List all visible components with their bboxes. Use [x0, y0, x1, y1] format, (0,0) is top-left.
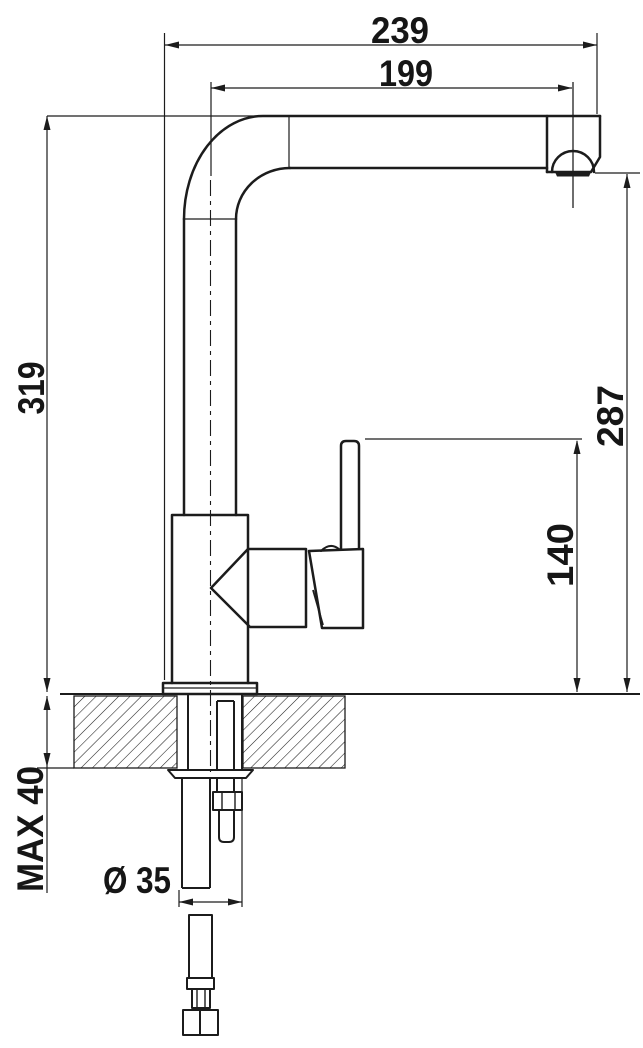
dim-label-199: 199	[379, 53, 433, 94]
object-joint-lines	[163, 116, 323, 688]
faucet-outline	[163, 116, 600, 694]
centerlines	[211, 82, 574, 772]
countertop-hatch-right	[243, 696, 345, 768]
arrow-199-right	[558, 85, 572, 92]
mounting-nut	[213, 792, 242, 810]
threaded-stud-upper	[217, 701, 234, 769]
dim-label-140: 140	[540, 523, 581, 587]
countertop	[60, 694, 640, 768]
hose-fitting-facets	[197, 989, 205, 1008]
countertop-hatch-left	[74, 696, 177, 768]
dim-label-287: 287	[590, 385, 631, 447]
drawing-canvas: 239 199 319 287 140 MAX 40 Ø 35	[0, 0, 643, 1048]
threaded-stud-lower	[217, 778, 234, 792]
dim-label-d35: Ø 35	[103, 860, 171, 901]
arrow-199-left	[211, 85, 225, 92]
extension-lines	[37, 33, 640, 907]
arrow-140-top	[574, 440, 581, 454]
hose-collar	[187, 978, 214, 989]
arrow-d35-right	[228, 899, 242, 906]
arrow-239-left	[165, 42, 179, 49]
stud-tip	[219, 810, 234, 842]
valve-body	[211, 549, 306, 627]
cartridge-cap	[309, 549, 363, 628]
arrow-d35-left	[179, 899, 193, 906]
cap-crease-line	[313, 590, 323, 625]
arrow-287-top	[624, 174, 631, 188]
arrow-239-right	[583, 42, 597, 49]
aerator-outlet	[555, 172, 591, 177]
dim-label-max40: MAX 40	[10, 766, 51, 892]
hose-tube	[189, 915, 212, 978]
arrow-319-top	[44, 116, 51, 130]
arrow-max40-top	[44, 696, 51, 710]
supply-hose	[183, 915, 218, 1035]
arrow-287-bottom	[624, 678, 631, 692]
dimension-lines	[47, 45, 627, 902]
spout-inner-curve	[236, 168, 290, 219]
hose-fitting	[192, 989, 210, 1008]
arrow-319-bottom	[44, 678, 51, 692]
dim-label-319: 319	[11, 362, 52, 415]
arrow-max40-bottom	[44, 753, 51, 767]
supply-pipe	[182, 778, 210, 888]
mounting-nut-facets	[222, 792, 235, 810]
handle-lever	[341, 441, 359, 549]
arrow-140-bottom	[574, 678, 581, 692]
dim-label-239: 239	[371, 10, 429, 51]
faucet-technical-drawing: 239 199 319 287 140 MAX 40 Ø 35	[0, 0, 643, 1048]
dimension-arrows	[44, 42, 631, 906]
